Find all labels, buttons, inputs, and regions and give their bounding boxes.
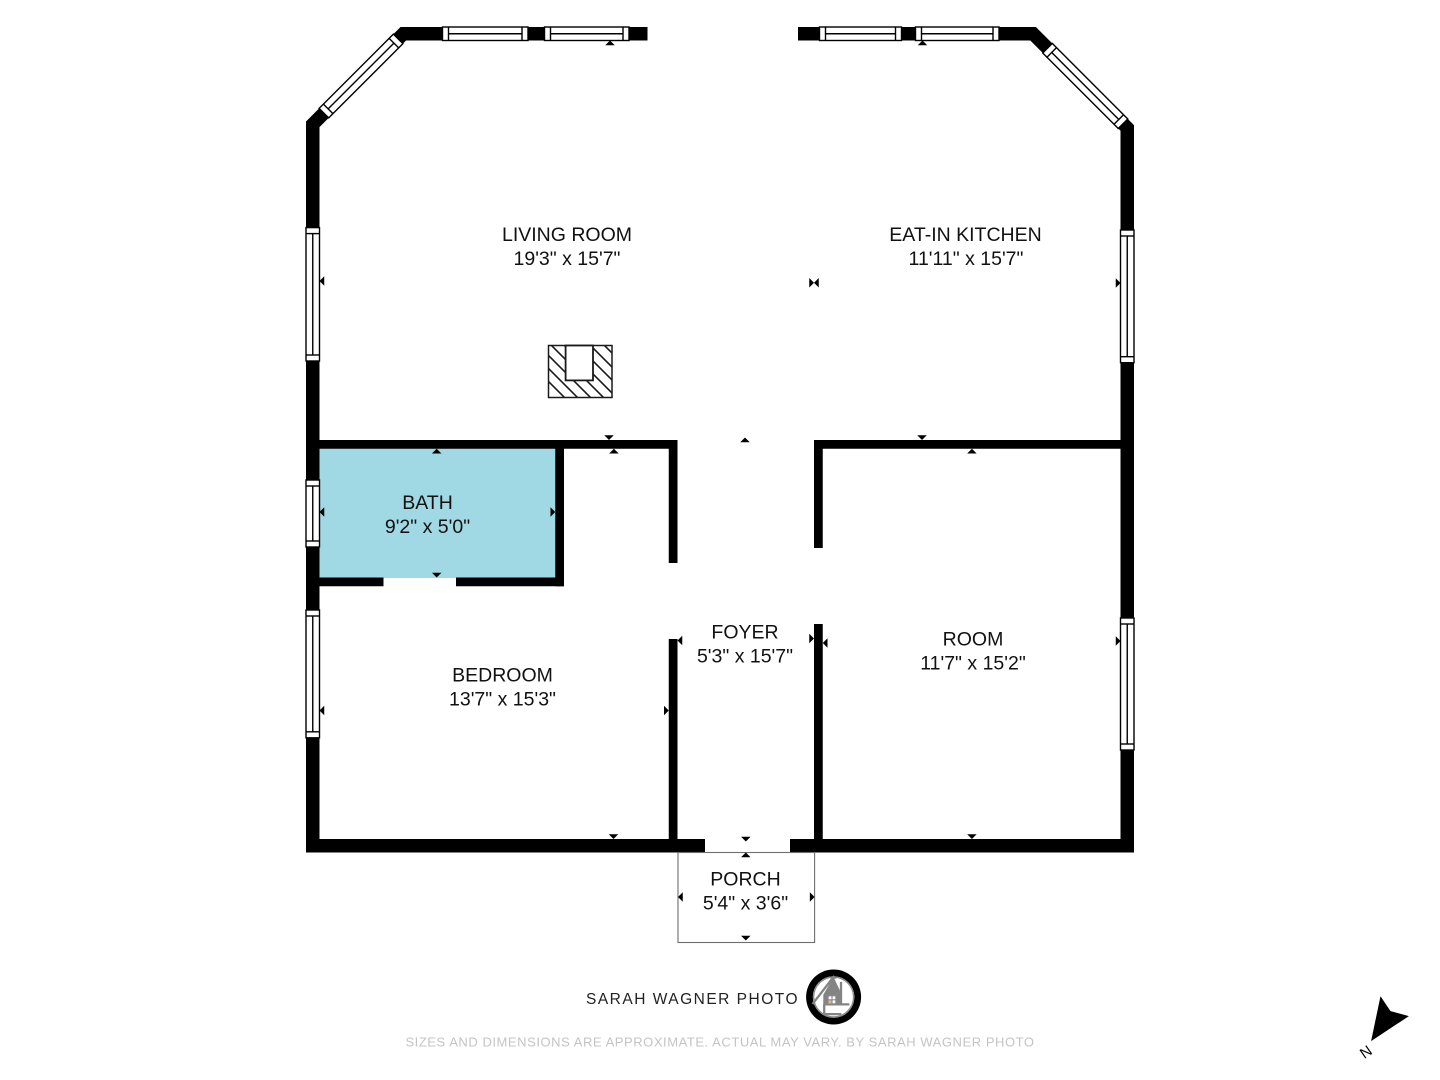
svg-text:5'4" x 3'6": 5'4" x 3'6" <box>703 893 788 915</box>
svg-text:11'11" x 15'7": 11'11" x 15'7" <box>909 248 1024 270</box>
svg-text:13'7" x 15'3": 13'7" x 15'3" <box>449 689 556 711</box>
svg-text:19'3" x 15'7": 19'3" x 15'7" <box>514 248 621 270</box>
svg-text:FOYER: FOYER <box>711 622 778 644</box>
svg-text:PORCH: PORCH <box>710 869 780 891</box>
svg-text:SARAH WAGNER PHOTO: SARAH WAGNER PHOTO <box>586 991 799 1008</box>
svg-text:11'7" x 15'2": 11'7" x 15'2" <box>920 653 1026 675</box>
svg-text:BEDROOM: BEDROOM <box>452 665 553 687</box>
svg-text:BATH: BATH <box>402 492 453 514</box>
svg-text:ROOM: ROOM <box>943 629 1004 651</box>
svg-text:SIZES AND DIMENSIONS ARE APPRO: SIZES AND DIMENSIONS ARE APPROXIMATE. AC… <box>405 1035 1034 1050</box>
svg-text:EAT-IN KITCHEN: EAT-IN KITCHEN <box>889 224 1041 246</box>
svg-text:5'3" x 15'7": 5'3" x 15'7" <box>697 646 793 668</box>
svg-text:9'2" x 5'0": 9'2" x 5'0" <box>385 516 470 538</box>
svg-text:LIVING ROOM: LIVING ROOM <box>502 224 632 246</box>
